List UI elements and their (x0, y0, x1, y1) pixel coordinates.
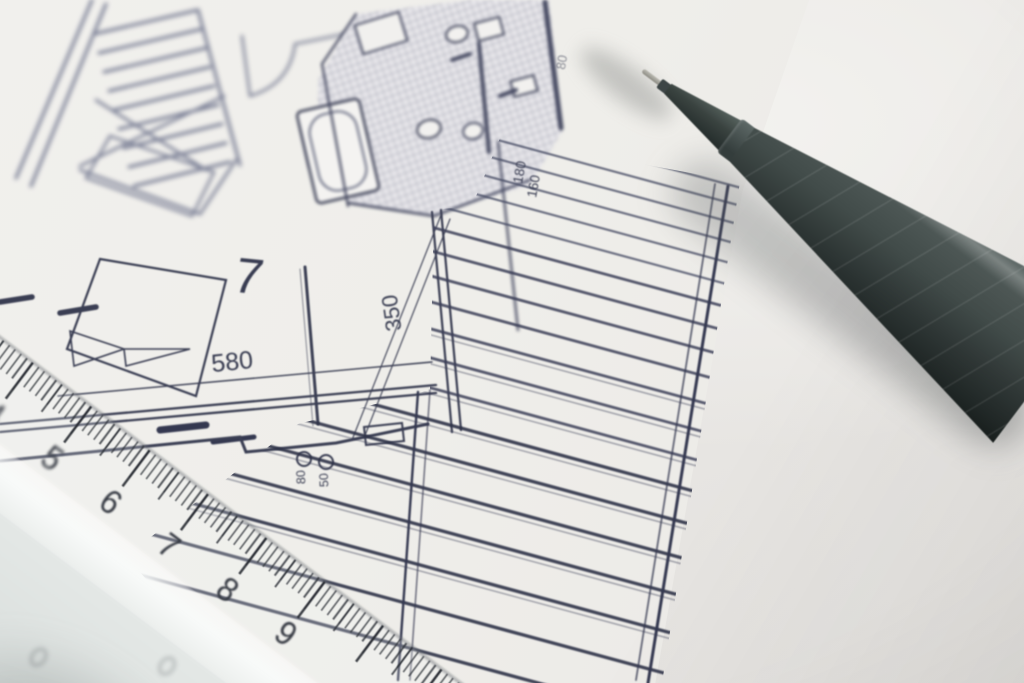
pillow-marks (70, 331, 190, 366)
dim-350-label: 350 (377, 293, 407, 333)
dim-80-detail-label: 80 (294, 470, 308, 484)
staircase-symbol (16, 0, 345, 216)
deck-rails (398, 184, 728, 683)
dim-80-top-label: 80 (553, 54, 570, 71)
dim-50-detail-label: 50 (317, 473, 331, 487)
photo-stage: 7 580 350 180 160 80 80 50 4 5 6 7 8 9 (0, 0, 1024, 683)
bed-symbol (67, 259, 226, 396)
dim-160-label: 160 (524, 174, 543, 199)
room-number-label: 7 (229, 247, 268, 305)
dim-580-label: 580 (210, 346, 254, 378)
